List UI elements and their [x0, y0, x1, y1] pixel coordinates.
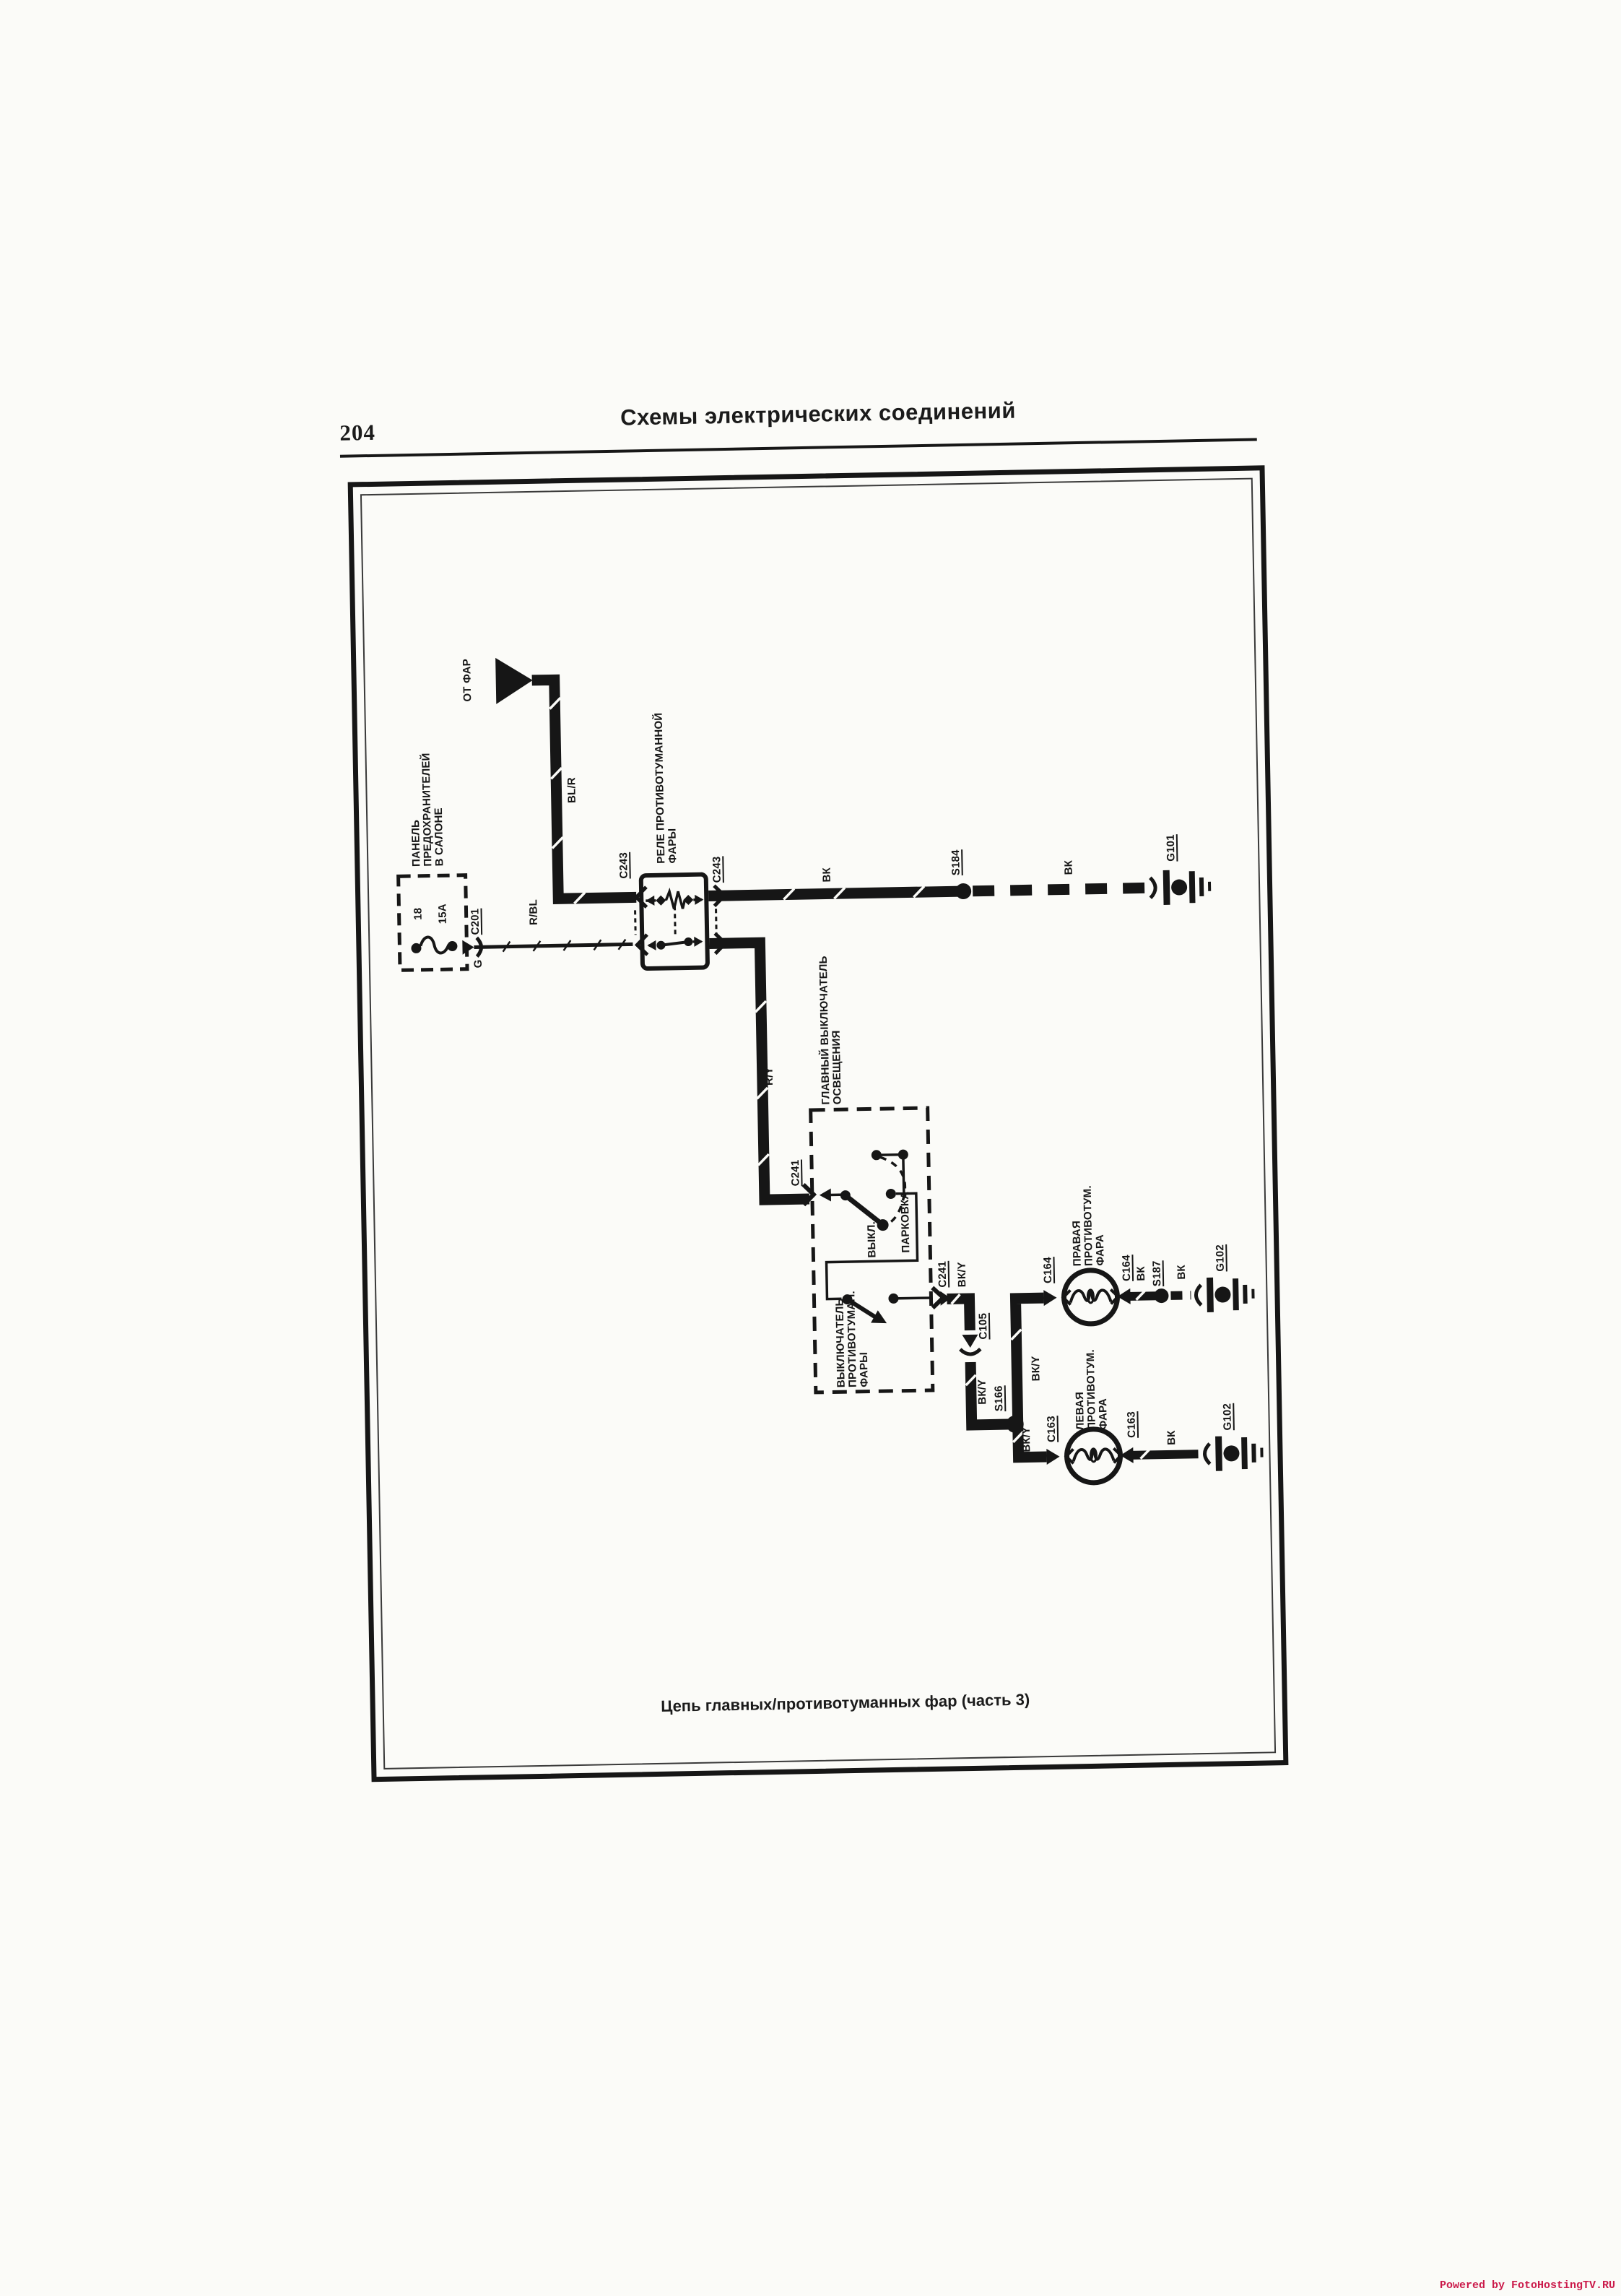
wire-bk-dashed-g101 — [973, 888, 1144, 891]
wire-label-bk-3: ВК — [1136, 1266, 1147, 1281]
label-from-headlamps: ОТ ФАР — [461, 659, 474, 702]
lamp-filament — [1070, 1290, 1111, 1303]
label-left-lamp: ЛЕВАЯ ПРОТИВОТУМ. ФАРА — [1074, 1349, 1110, 1431]
fuse-element — [420, 937, 448, 953]
wiring-diagram-graphics — [0, 0, 1621, 2296]
label-relay: РЕЛЕ ПРОТИВОТУМАННОЙ ФАРЫ — [653, 712, 679, 864]
scan-content: 204 Схемы электрических соединений — [0, 0, 1621, 2296]
splice-label-s184: S184 — [950, 849, 962, 875]
ground-g102-right — [1196, 1277, 1255, 1312]
wire-bk-y-to-c105 — [947, 1299, 970, 1331]
label-right-lamp: ПРАВАЯ ПРОТИВОТУМ. ФАРА — [1071, 1185, 1107, 1267]
wire-bk-right-lamp-out — [1127, 1296, 1156, 1296]
wire-bk-relay-s184 — [708, 891, 961, 896]
wire-label-r-y: R/Y — [764, 1067, 775, 1086]
right-fog-lamp — [1043, 1270, 1131, 1325]
relay-box — [641, 875, 708, 969]
label-main-switch: ГЛАВНЫЙ ВЫКЛЮЧАТЕЛЬ ОСВЕЩЕНИЯ — [818, 956, 844, 1105]
ground-label-g101: G101 — [1165, 834, 1178, 862]
wire-label-bk-2: ВК — [1063, 860, 1074, 875]
connector-label-c243-right: C243 — [711, 856, 723, 883]
wire-bk-dashed-g102 — [1170, 1295, 1191, 1296]
wire-label-r-bl: R/BL — [528, 899, 540, 925]
connector-label-c163-in: C163 — [1046, 1416, 1058, 1442]
splices — [955, 880, 1171, 1434]
relay-actuator-link — [674, 906, 675, 937]
label-fog-switch: ВЫКЛЮЧАТЕЛЬ ПРОТИВОТУМАН. ФАРЫ — [834, 1291, 870, 1388]
wire-label-bk-y-1: ВК/Y — [957, 1262, 969, 1287]
label-fuse-position: 18 — [412, 908, 424, 920]
fog-lamp-relay — [635, 874, 726, 969]
label-fuse-panel: ПАНЕЛЬ ПРЕДОХРАНИТЕЛЕЙ В САЛОНЕ — [409, 753, 446, 867]
label-position-parking: ПАРКОВКА — [900, 1192, 913, 1253]
splice-s184 — [955, 883, 971, 899]
lamp-filament — [1073, 1449, 1113, 1462]
ground-label-g102-right: G102 — [1214, 1244, 1227, 1272]
connector-label-c163-out: C163 — [1126, 1411, 1138, 1438]
wire-label-bk-1: ВК — [822, 867, 833, 883]
left-fog-lamp — [1046, 1429, 1134, 1483]
wire-r-bl-thin — [474, 944, 633, 947]
hosting-watermark: Powered by FotoHostingTV.RU — [1440, 2279, 1615, 2292]
label-fuse-rating: 15A — [437, 904, 449, 924]
wire-label-bk-4: ВК — [1176, 1265, 1188, 1280]
off-page-arrow — [495, 657, 533, 704]
wire-label-g: G — [473, 959, 484, 968]
splice-label-s187: S187 — [1152, 1260, 1164, 1286]
connector-label-c241-in: C241 — [790, 1160, 802, 1187]
splice-s187 — [1154, 1288, 1168, 1303]
wire-label-bk-y-3: ВК/Y — [1030, 1356, 1043, 1381]
ground-g102-left — [1204, 1436, 1264, 1471]
connector-label-c105: C105 — [978, 1313, 990, 1340]
wire-label-bk-y-2: ВК/Y — [977, 1379, 989, 1405]
relay-contact — [661, 942, 688, 945]
ground-g101 — [1150, 870, 1212, 906]
wire-label-bk-5: ВК — [1166, 1430, 1178, 1445]
connector-label-c201: C201 — [469, 909, 482, 935]
ground-label-g102-left: G102 — [1222, 1403, 1234, 1431]
splice-label-s166: S166 — [994, 1385, 1006, 1411]
wire-bk-left-lamp-out — [1131, 1454, 1199, 1455]
wire-label-bk-y-4: ВК/Y — [1021, 1426, 1033, 1452]
connector-label-c164-in: C164 — [1042, 1257, 1054, 1283]
connector-label-c243-left: C243 — [618, 852, 630, 879]
connector-label-c164-out: C164 — [1121, 1255, 1133, 1281]
scanned-manual-page: 204 Схемы электрических соединений — [0, 0, 1621, 2296]
wire-label-bl-r: BL/R — [566, 777, 578, 803]
connector-label-c241-out: C241 — [937, 1261, 949, 1288]
main-switch-wiper — [846, 1195, 882, 1224]
label-position-off: ВЫКЛ. — [866, 1221, 879, 1258]
